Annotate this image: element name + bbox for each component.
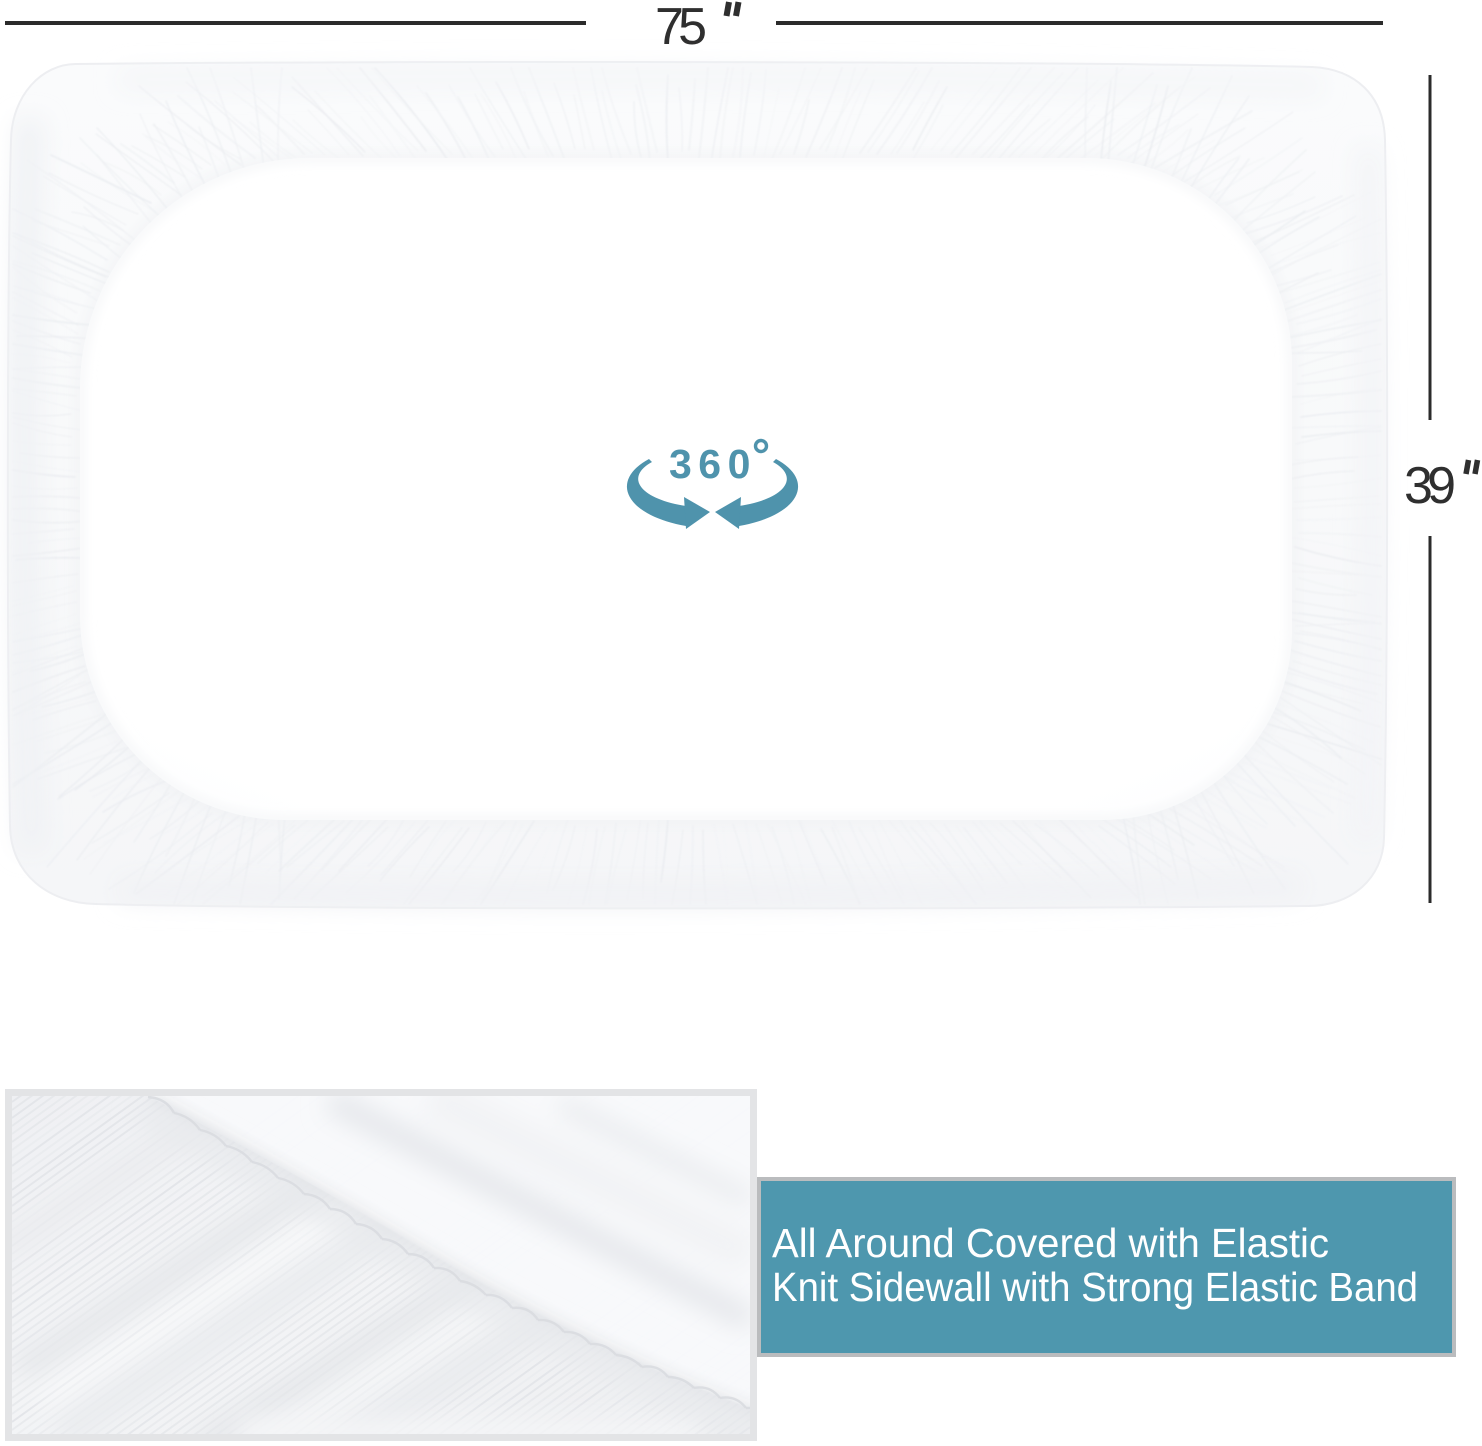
- svg-text:All Around Covered with Elasti: All Around Covered with Elastic: [772, 1220, 1329, 1266]
- svg-text:75: 75: [655, 0, 707, 56]
- svg-text:Knit Sidewall with Strong Elas: Knit Sidewall with Strong Elastic Band: [772, 1264, 1418, 1310]
- svg-text:360: 360: [669, 441, 757, 487]
- svg-text:39: 39: [1404, 457, 1456, 515]
